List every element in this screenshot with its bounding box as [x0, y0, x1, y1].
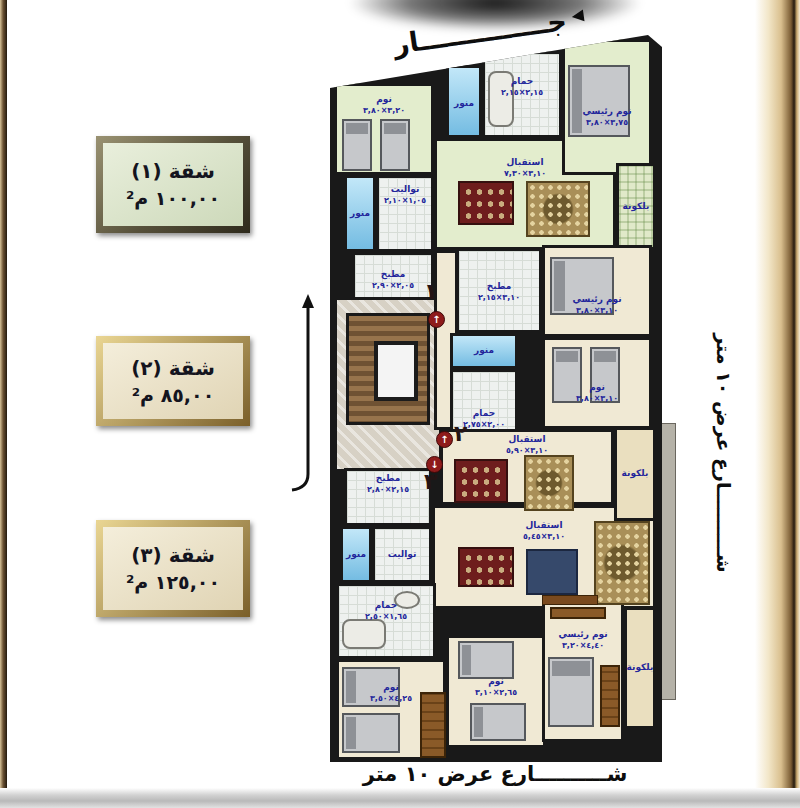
tv [526, 549, 578, 595]
apt2-kitchen-name: مطبخ [487, 281, 512, 293]
apt3-balcony: بلكونة [624, 607, 656, 729]
page-border-left [0, 0, 7, 792]
apartment-3-card: شقة (٣) ١٢٥,٠٠ م² [96, 520, 250, 617]
arrow-right-icon [571, 9, 585, 23]
apartment-1-card: شقة (١) ١٠٠,٠٠ م² [96, 136, 250, 233]
dining [454, 459, 508, 503]
entrance-number-2: ٢ [454, 423, 467, 445]
apt1-lightwell-2: منور [446, 65, 482, 138]
neighbor-arrow-left [286, 292, 326, 498]
apt3-balcony-name: بلكونة [627, 662, 654, 674]
apt2-balcony-name: بلكونة [622, 468, 649, 480]
apt1-bathroom-name: حمام [511, 76, 534, 88]
bed-h [470, 703, 526, 741]
apt3-toilet-label: توالیت [375, 529, 429, 580]
floor-plan: استقبال٣,١٠×٧,٣٠نوم٣,٢٠×٣,٨٠توالیت١,٠٥×٢… [330, 35, 662, 762]
page-border-bottom [0, 788, 800, 808]
dining [458, 181, 514, 225]
apt3-master-bedroom-dims: ٤,٤٠×٣,٢٠ [562, 641, 604, 651]
apt1-toilet-label: توالیت١,٠٥×٢,١٠ [379, 178, 431, 249]
apt1-lightwell-1-label: منور [347, 178, 373, 249]
table [542, 595, 598, 605]
page-border-right [755, 0, 800, 808]
apartment-3-title: شقة (٣) [131, 541, 215, 569]
apartment-1-area: ١٠٠,٠٠ م² [126, 185, 220, 212]
scanned-floor-plan-page: { "colors":{ "wall":"#191919","green":"#… [0, 0, 800, 808]
bed-v [342, 119, 372, 171]
apt2-reception-name: استقبال [509, 434, 546, 446]
sink [394, 591, 420, 609]
apartment-1-card-face: شقة (١) ١٠٠,٠٠ م² [103, 143, 243, 226]
bed-h [550, 257, 614, 315]
apt1-bedroom-dims: ٣,٢٠×٣,٨٠ [363, 106, 405, 116]
bed-v [548, 657, 594, 727]
tub-v [488, 71, 514, 127]
apt3-kitchen-dims: ٢,١٥×٢,٨٠ [367, 485, 409, 495]
apt3-master-bedroom-name: نوم رئيسي [558, 629, 607, 641]
street-label-right: شــــــــــارع عرض ١٠ متر [705, 281, 735, 625]
dresser [550, 607, 606, 619]
entrance-number-1: ١ [424, 281, 437, 303]
apt1-balcony: بلكونة [616, 163, 656, 250]
bed-v [552, 347, 582, 403]
apt2-lightwell-label: منور [453, 336, 515, 366]
apartment-2-area: ٨٥,٠٠ م² [132, 382, 214, 409]
bed-h [458, 641, 514, 679]
wardrobe [600, 665, 620, 727]
apt2-bathroom-name: حمام [473, 408, 496, 420]
apt2-balcony-label: بلكونة [617, 430, 653, 518]
apt3-kitchen-label: مطبخ٢,١٥×٢,٨٠ [347, 471, 429, 523]
apt1-lightwell-1-name: منور [350, 208, 370, 220]
bed-h [342, 713, 400, 753]
apt1-toilet-name: توالیت [391, 184, 420, 196]
bed-v [590, 347, 620, 403]
apt3-reception-dims: ٣,١٠×٥,٤٥ [523, 532, 565, 542]
dining [458, 547, 514, 587]
apartment-2-title: شقة (٢) [131, 354, 215, 382]
apartment-3-area: ١٢٥,٠٠ م² [126, 569, 220, 596]
apt1-toilet-dims: ١,٠٥×٢,١٠ [384, 196, 426, 206]
apt2-kitchen-label: مطبخ٣,١٠×٢,١٥ [459, 251, 539, 330]
bed-h [568, 65, 630, 137]
apt1-toilet: توالیت١,٠٥×٢,١٠ [376, 175, 434, 252]
apt3-lightwell-label: منور [343, 529, 369, 580]
apt2-lightwell-name: منور [474, 345, 494, 357]
apartment-3-card-face: شقة (٣) ١٢٥,٠٠ م² [103, 527, 243, 610]
entrance-marker-2: ↑ [436, 431, 453, 448]
apt1-balcony-label: بلكونة [619, 166, 653, 247]
apt3-reception-name: استقبال [526, 520, 563, 532]
apt2-kitchen-dims: ٣,١٠×٢,١٥ [478, 293, 520, 303]
apt1-bedroom-name: نوم [376, 94, 392, 106]
tub-h [342, 619, 386, 649]
wardrobe [420, 692, 446, 758]
entrance-number-3: ٣ [424, 471, 437, 493]
apt2-lightwell: منور [450, 333, 518, 369]
apt2-kitchen: مطبخ٣,١٠×٢,١٥ [456, 248, 542, 333]
apt1-lightwell-2-name: منور [454, 98, 474, 110]
apartment-1-title: شقة (١) [131, 157, 215, 185]
apartment-2-card-face: شقة (٢) ٨٥,٠٠ م² [103, 343, 243, 419]
bed-v [380, 119, 410, 171]
street-label-bottom: شــــــــــارع عرض ١٠ متر [333, 762, 657, 788]
apt1-kitchen-name: مطبخ [381, 269, 406, 281]
sofa [526, 181, 590, 237]
apt1-reception-name: استقبال [507, 157, 544, 169]
entrance-marker-1: ↑ [428, 311, 445, 328]
apt3-toilet: توالیت [372, 526, 432, 583]
apartment-2-card: شقة (٢) ٨٥,٠٠ م² [96, 336, 250, 426]
apt1-lightwell-1: منور [344, 175, 376, 252]
bed-h [342, 667, 400, 707]
apt1-balcony-name: بلكونة [623, 201, 650, 213]
elev [374, 341, 418, 401]
apt2-balcony: بلكونة [614, 427, 656, 521]
apt3-kitchen-name: مطبخ [376, 473, 401, 485]
apt3-toilet-name: توالیت [388, 549, 417, 561]
apt3-kitchen: مطبخ٢,١٥×٢,٨٠ [344, 468, 432, 526]
apt3-balcony-label: بلكونة [627, 610, 653, 726]
apt3-lightwell: منور [340, 526, 372, 583]
apt3-bedroom-2-dims: ٢,٦٥×٣,١٠ [475, 688, 517, 698]
apt1-kitchen-dims: ٢,٠٥×٢,٩٠ [372, 281, 414, 291]
apt1-lightwell-2-label: منور [449, 68, 479, 135]
apt1-reception-dims: ٣,١٠×٧,٣٠ [504, 169, 546, 179]
sofa [524, 455, 574, 511]
apt3-lightwell-name: منور [346, 549, 366, 561]
sofa [594, 521, 650, 605]
